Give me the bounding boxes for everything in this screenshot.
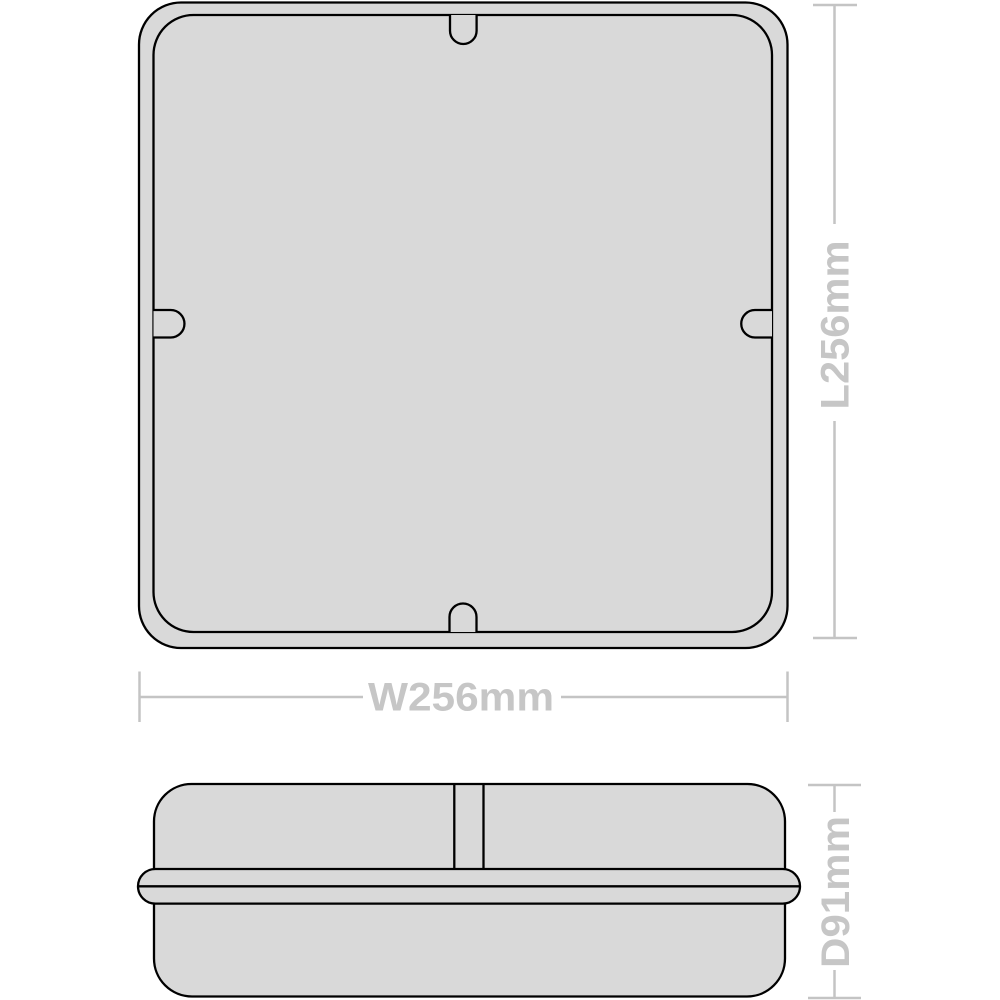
svg-text:D91mm: D91mm [814,816,858,968]
svg-text:L256mm: L256mm [814,241,858,410]
svg-text:W256mm: W256mm [368,676,554,720]
